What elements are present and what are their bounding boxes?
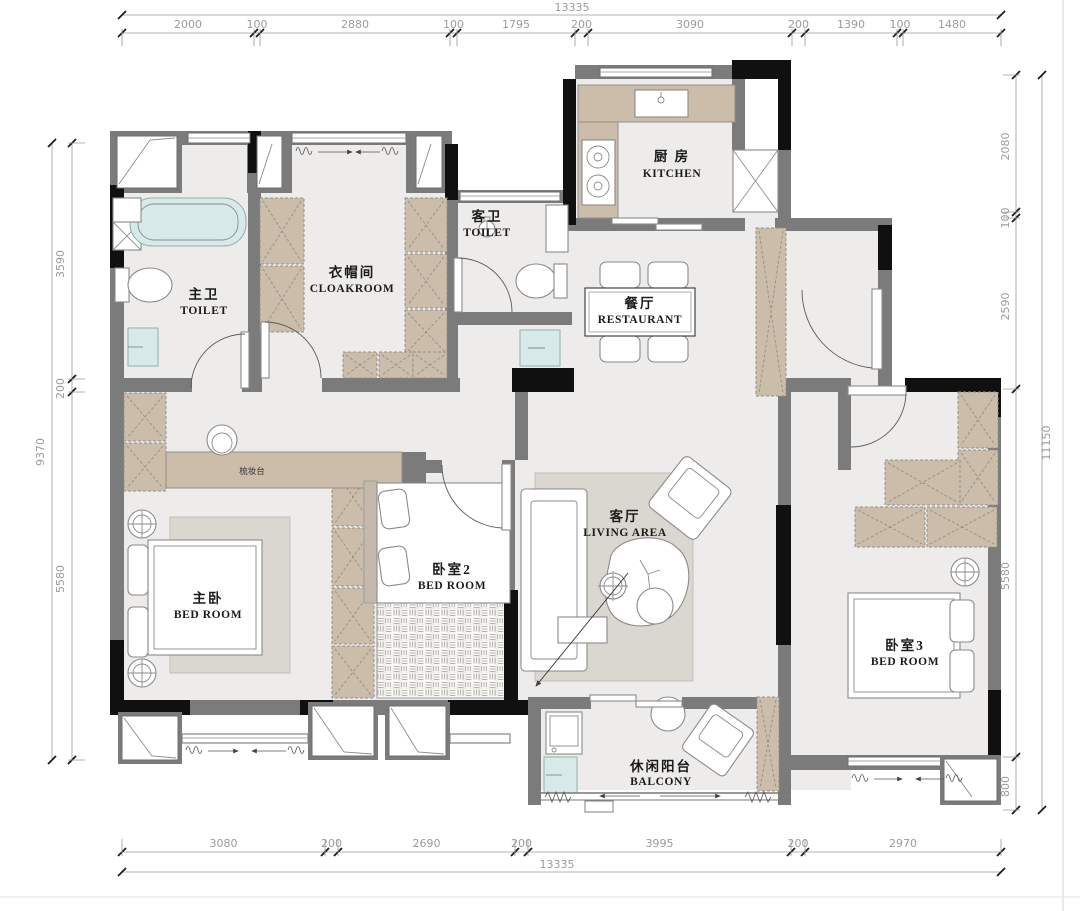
living-label-zh: 客厅 — [609, 508, 641, 524]
left-dimension-chain: 359020055809370 — [34, 139, 85, 764]
door-leaf — [502, 464, 511, 530]
living-label-en: LIVING AREA — [583, 527, 667, 539]
master-bedroom-label-zh: 主卧 — [193, 590, 224, 606]
toilet — [128, 268, 172, 302]
dimension-label: 3080 — [210, 837, 238, 850]
wardrobe-unit — [757, 697, 779, 791]
dining-label-zh: 餐厅 — [624, 295, 656, 311]
bedroom2-woven-mat — [377, 603, 510, 698]
dimension-label: 100 — [443, 18, 464, 31]
kitchen-label-zh: 厨 房 — [654, 148, 690, 164]
dimension-label: 3590 — [54, 250, 67, 278]
cloakroom-label-zh: 衣帽间 — [329, 264, 376, 280]
entry-door-leaf — [872, 289, 882, 369]
window — [182, 734, 308, 743]
balcony-railing — [541, 792, 790, 812]
balcony-label-en: BALCONY — [630, 776, 692, 788]
master-bedroom-label-en: BED ROOM — [174, 609, 242, 621]
master-toilet-label-zh: 主卫 — [189, 286, 220, 302]
toilet-tank — [554, 264, 567, 298]
door-leaf — [241, 332, 249, 388]
dimension-label: 200 — [54, 378, 67, 399]
dimension-label: 3090 — [676, 18, 704, 31]
toilet — [516, 264, 556, 298]
dimension-label: 200 — [321, 837, 342, 850]
ottoman — [637, 588, 673, 624]
dimension-total-label: 9370 — [34, 438, 47, 466]
nightstand-lamp — [128, 510, 156, 538]
dimension-label: 2080 — [999, 133, 1012, 161]
dimension-label: 200 — [788, 18, 809, 31]
kitchen-label-en: KITCHEN — [643, 168, 702, 180]
dining-set — [585, 262, 695, 362]
bottom-dimension-chain: 308020026902003995200297013335 — [118, 837, 1005, 876]
dining-label-en: RESTAURANT — [598, 314, 682, 326]
master-toilet-label-en: TOILET — [180, 305, 228, 317]
dimension-label: 200 — [788, 837, 809, 850]
dimension-label: 1795 — [502, 18, 530, 31]
dimension-label: 2880 — [341, 18, 369, 31]
dimension-total-label: 11150 — [1040, 426, 1053, 461]
pillow — [128, 607, 148, 657]
wardrobe-unit — [958, 450, 998, 505]
washing-machine — [546, 712, 582, 754]
guest-toilet-label-en: TOILET — [463, 227, 511, 239]
door-leaf — [848, 386, 906, 395]
pillow — [377, 545, 410, 587]
dimension-label: 100 — [247, 18, 268, 31]
dimension-total-label: 13335 — [555, 1, 590, 14]
dimension-label: 2000 — [174, 18, 202, 31]
wardrobe-unit — [885, 460, 960, 505]
bedroom3-label-zh: 卧室3 — [885, 637, 925, 653]
toilet-tank — [115, 268, 129, 302]
top-dimension-chain: 2000100288010017952003090200139010014801… — [118, 1, 1005, 46]
window — [460, 192, 560, 201]
right-dimension-chain: 20801002590558080011150 — [999, 71, 1053, 814]
dimension-label: 5580 — [54, 565, 67, 593]
dimension-label: 800 — [999, 776, 1012, 797]
dimension-label: 1390 — [837, 18, 865, 31]
pillow — [950, 650, 974, 692]
window — [450, 734, 510, 743]
side-table — [558, 617, 607, 643]
nightstand-lamp — [951, 558, 979, 586]
headboard — [364, 481, 377, 603]
door-leaf — [454, 258, 462, 312]
balcony-label-zh: 休闲阳台 — [629, 758, 692, 774]
bedroom2-label-en: BED ROOM — [418, 580, 486, 592]
dimension-label: 1480 — [938, 18, 966, 31]
dimension-label: 100 — [999, 208, 1012, 229]
nightstand-lamp — [128, 659, 156, 687]
dimension-label: 100 — [890, 18, 911, 31]
bath-shelf — [113, 198, 141, 222]
dimension-label: 2690 — [413, 837, 441, 850]
bedroom2-label-zh: 卧室2 — [432, 561, 472, 577]
stool — [207, 425, 237, 455]
stove — [582, 140, 615, 205]
dressing-table-label: 梳妆台 — [239, 466, 265, 476]
bedroom3-label-en: BED ROOM — [871, 656, 939, 668]
floor-plan-canvas: 2000100288010017952003090200139010014801… — [0, 0, 1080, 911]
pillow — [128, 545, 148, 595]
pillow — [950, 600, 974, 642]
dimension-label: 2590 — [999, 293, 1012, 321]
pillow — [377, 488, 410, 530]
floor-plan-drawing: 2000100288010017952003090200139010014801… — [0, 0, 1080, 911]
kitchen-sink — [635, 90, 688, 117]
dimension-label: 200 — [511, 837, 532, 850]
cloakroom-label-en: CLOAKROOM — [310, 283, 395, 295]
door-leaf — [261, 322, 269, 378]
dimension-label: 3995 — [646, 837, 674, 850]
window — [600, 68, 712, 77]
vanity — [546, 205, 568, 252]
dimension-total-label: 13335 — [540, 858, 575, 871]
dimension-label: 200 — [571, 18, 592, 31]
dimension-label: 5580 — [999, 562, 1012, 590]
guest-toilet-label-zh: 客卫 — [471, 208, 503, 224]
dimension-label: 2970 — [889, 837, 917, 850]
